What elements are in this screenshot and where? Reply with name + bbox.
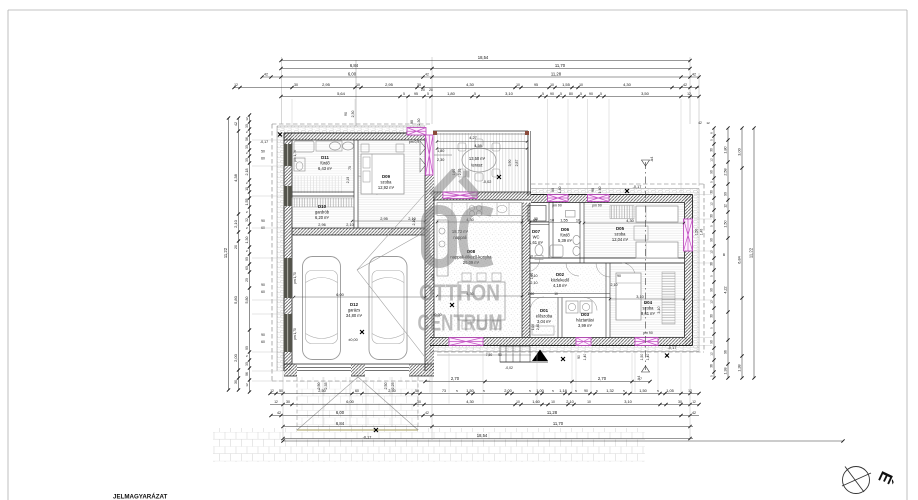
svg-text:3,10: 3,10 bbox=[505, 91, 514, 96]
svg-text:garázs: garázs bbox=[348, 308, 360, 313]
svg-text:1,50: 1,50 bbox=[639, 388, 647, 393]
svg-text:12,92 m²: 12,92 m² bbox=[378, 185, 395, 190]
svg-text:95: 95 bbox=[533, 217, 537, 222]
svg-text:56: 56 bbox=[245, 137, 249, 141]
svg-text:2,10: 2,10 bbox=[530, 281, 537, 285]
svg-text:1,80: 1,80 bbox=[447, 91, 456, 96]
svg-text:10: 10 bbox=[587, 400, 591, 404]
svg-text:1,05: 1,05 bbox=[531, 324, 535, 330]
svg-text:2,18: 2,18 bbox=[245, 169, 249, 176]
svg-text:30: 30 bbox=[710, 214, 714, 218]
svg-text:2,30: 2,30 bbox=[437, 158, 444, 162]
svg-text:-0,17: -0,17 bbox=[633, 185, 642, 189]
svg-text:6,00: 6,00 bbox=[336, 292, 344, 297]
svg-text:közlekedő: közlekedő bbox=[551, 278, 570, 283]
svg-text:D06: D06 bbox=[561, 227, 570, 232]
svg-text:1,60: 1,60 bbox=[528, 292, 535, 296]
svg-text:5: 5 bbox=[623, 389, 625, 393]
svg-text:12: 12 bbox=[710, 158, 714, 162]
svg-text:42: 42 bbox=[425, 73, 429, 77]
svg-text:3,10: 3,10 bbox=[624, 399, 632, 404]
svg-text:18,54: 18,54 bbox=[477, 433, 488, 438]
svg-text:pm 90: pm 90 bbox=[643, 331, 653, 335]
svg-text:2,58: 2,58 bbox=[724, 168, 728, 175]
svg-text:50: 50 bbox=[261, 150, 265, 154]
svg-text:10: 10 bbox=[516, 83, 520, 87]
svg-text:D07: D07 bbox=[532, 229, 541, 234]
svg-text:90: 90 bbox=[589, 92, 593, 96]
svg-text:1,40: 1,40 bbox=[646, 354, 650, 361]
svg-text:1,40: 1,40 bbox=[700, 229, 704, 236]
svg-text:42: 42 bbox=[264, 73, 268, 77]
svg-text:12: 12 bbox=[710, 352, 714, 356]
svg-text:2,50: 2,50 bbox=[318, 388, 326, 393]
svg-text:2,00: 2,00 bbox=[504, 388, 512, 393]
svg-text:12: 12 bbox=[706, 121, 710, 125]
svg-text:12: 12 bbox=[692, 400, 696, 404]
svg-text:4,30: 4,30 bbox=[466, 399, 474, 404]
svg-text:±0,00: ±0,00 bbox=[348, 338, 357, 342]
svg-text:pm 0,9: pm 0,9 bbox=[409, 140, 419, 144]
svg-text:96: 96 bbox=[724, 350, 728, 354]
svg-text:1,50: 1,50 bbox=[466, 388, 474, 393]
svg-text:2,70: 2,70 bbox=[598, 376, 607, 381]
svg-text:1,80: 1,80 bbox=[437, 149, 444, 153]
svg-text:11,22: 11,22 bbox=[223, 247, 228, 258]
svg-text:90: 90 bbox=[710, 170, 714, 174]
svg-text:12: 12 bbox=[724, 204, 728, 208]
svg-text:2,00: 2,00 bbox=[233, 353, 238, 362]
svg-text:D12: D12 bbox=[350, 302, 359, 307]
svg-text:90: 90 bbox=[245, 346, 249, 350]
svg-text:90: 90 bbox=[344, 112, 348, 116]
svg-text:6,84: 6,84 bbox=[336, 421, 345, 426]
svg-text:90: 90 bbox=[261, 283, 265, 287]
svg-text:2,10: 2,10 bbox=[233, 219, 238, 228]
svg-text:90: 90 bbox=[261, 219, 265, 223]
svg-text:95: 95 bbox=[534, 83, 538, 87]
svg-text:1,55: 1,55 bbox=[562, 82, 571, 87]
svg-text:2,95: 2,95 bbox=[380, 216, 388, 221]
svg-text:13,50 m²: 13,50 m² bbox=[469, 156, 486, 161]
svg-text:32: 32 bbox=[245, 218, 249, 222]
svg-text:30: 30 bbox=[710, 190, 714, 194]
svg-text:5: 5 bbox=[575, 389, 577, 393]
svg-text:1,18: 1,18 bbox=[559, 388, 567, 393]
svg-text:90: 90 bbox=[584, 389, 588, 393]
svg-text:10: 10 bbox=[356, 83, 360, 87]
svg-text:3,50: 3,50 bbox=[641, 91, 650, 96]
svg-text:30: 30 bbox=[245, 145, 249, 149]
svg-text:fürdő: fürdő bbox=[320, 161, 330, 166]
svg-text:75: 75 bbox=[530, 255, 534, 259]
svg-text:18,54: 18,54 bbox=[478, 55, 489, 60]
svg-text:73: 73 bbox=[442, 389, 446, 393]
svg-text:5: 5 bbox=[483, 389, 485, 393]
svg-text:7: 7 bbox=[640, 377, 642, 381]
svg-text:11,22: 11,22 bbox=[749, 247, 754, 258]
svg-text:6,43 m²: 6,43 m² bbox=[318, 166, 333, 171]
svg-text:1,32: 1,32 bbox=[606, 388, 614, 393]
svg-text:30: 30 bbox=[710, 148, 714, 152]
svg-text:1,38: 1,38 bbox=[738, 364, 742, 371]
svg-text:5: 5 bbox=[403, 92, 405, 96]
svg-text:1,10: 1,10 bbox=[530, 273, 534, 280]
svg-text:20: 20 bbox=[245, 278, 249, 282]
svg-text:11,28: 11,28 bbox=[551, 72, 562, 77]
svg-text:10: 10 bbox=[551, 400, 555, 404]
svg-text:12: 12 bbox=[270, 389, 274, 393]
svg-text:4,30: 4,30 bbox=[623, 82, 632, 87]
svg-text:-0,02: -0,02 bbox=[483, 180, 492, 184]
svg-text:30: 30 bbox=[245, 124, 249, 128]
svg-text:D02: D02 bbox=[556, 272, 565, 277]
svg-text:42: 42 bbox=[698, 121, 702, 125]
svg-text:2,87: 2,87 bbox=[515, 160, 519, 167]
svg-text:6,84: 6,84 bbox=[738, 256, 742, 263]
svg-text:6,00: 6,00 bbox=[336, 410, 345, 415]
svg-text:3,04 m²: 3,04 m² bbox=[537, 319, 552, 324]
svg-text:2,95: 2,95 bbox=[385, 82, 394, 87]
svg-text:5: 5 bbox=[529, 389, 531, 393]
svg-text:90: 90 bbox=[245, 257, 249, 261]
svg-text:2,70: 2,70 bbox=[451, 376, 460, 381]
svg-text:CENTRUM: CENTRUM bbox=[418, 310, 503, 336]
svg-text:5: 5 bbox=[580, 92, 582, 96]
svg-text:60: 60 bbox=[355, 389, 359, 393]
svg-text:80: 80 bbox=[569, 92, 573, 96]
svg-text:50: 50 bbox=[279, 389, 283, 393]
svg-text:1,80: 1,80 bbox=[724, 146, 728, 153]
svg-text:96: 96 bbox=[245, 372, 249, 376]
svg-text:5,64: 5,64 bbox=[337, 91, 346, 96]
svg-text:OTTHON: OTTHON bbox=[419, 280, 500, 306]
svg-text:5: 5 bbox=[560, 92, 562, 96]
svg-text:90: 90 bbox=[710, 340, 714, 344]
svg-text:42: 42 bbox=[683, 83, 687, 87]
svg-text:2,95: 2,95 bbox=[322, 82, 331, 87]
svg-text:5: 5 bbox=[456, 389, 458, 393]
svg-text:JELMAGYARÁZAT: JELMAGYARÁZAT bbox=[113, 494, 168, 500]
svg-text:A4: A4 bbox=[650, 157, 654, 162]
svg-text:3,10: 3,10 bbox=[657, 306, 661, 313]
svg-text:12: 12 bbox=[687, 92, 691, 96]
svg-text:szoba: szoba bbox=[643, 306, 655, 311]
svg-text:90: 90 bbox=[724, 192, 728, 196]
svg-text:5: 5 bbox=[600, 92, 602, 96]
svg-text:90: 90 bbox=[577, 355, 581, 359]
svg-text:2,10: 2,10 bbox=[346, 223, 353, 227]
svg-text:75: 75 bbox=[348, 166, 352, 170]
svg-text:10: 10 bbox=[550, 83, 554, 87]
svg-text:12: 12 bbox=[710, 300, 714, 304]
svg-text:42: 42 bbox=[425, 411, 429, 415]
svg-text:30: 30 bbox=[234, 380, 238, 384]
svg-text:4,30: 4,30 bbox=[626, 218, 634, 223]
svg-text:30: 30 bbox=[245, 158, 249, 162]
svg-text:2,30: 2,30 bbox=[458, 169, 462, 176]
svg-text:12: 12 bbox=[274, 400, 278, 404]
svg-text:1,50: 1,50 bbox=[695, 229, 699, 236]
svg-text:12: 12 bbox=[710, 202, 714, 206]
svg-text:50: 50 bbox=[415, 389, 419, 393]
svg-text:28: 28 bbox=[429, 88, 433, 92]
svg-text:30: 30 bbox=[710, 314, 714, 318]
svg-text:D03: D03 bbox=[581, 312, 590, 317]
svg-text:10: 10 bbox=[516, 400, 520, 404]
svg-text:12: 12 bbox=[245, 383, 249, 387]
svg-text:30: 30 bbox=[710, 262, 714, 266]
svg-text:D10: D10 bbox=[318, 204, 327, 209]
svg-text:60: 60 bbox=[261, 290, 265, 294]
svg-text:3,10: 3,10 bbox=[636, 294, 644, 299]
svg-text:5: 5 bbox=[542, 92, 544, 96]
svg-text:3,99 m²: 3,99 m² bbox=[578, 323, 593, 328]
svg-text:6,00: 6,00 bbox=[348, 72, 357, 77]
svg-text:11,28: 11,28 bbox=[547, 410, 558, 415]
svg-text:1,60: 1,60 bbox=[532, 399, 540, 404]
svg-text:2,30: 2,30 bbox=[417, 119, 421, 126]
svg-text:10: 10 bbox=[579, 83, 583, 87]
svg-text:pm 90: pm 90 bbox=[552, 204, 562, 208]
svg-text:11,70: 11,70 bbox=[553, 421, 564, 426]
svg-text:4,27: 4,27 bbox=[469, 135, 477, 140]
svg-text:90: 90 bbox=[550, 92, 554, 96]
svg-text:-0,02: -0,02 bbox=[505, 366, 513, 370]
svg-text:42: 42 bbox=[692, 411, 696, 415]
svg-text:1,40: 1,40 bbox=[583, 354, 587, 361]
svg-text:4,18 m²: 4,18 m² bbox=[553, 283, 568, 288]
svg-text:1,05: 1,05 bbox=[666, 388, 674, 393]
svg-text:-0,17: -0,17 bbox=[260, 140, 268, 144]
svg-text:1,55: 1,55 bbox=[560, 217, 568, 222]
svg-text:D04: D04 bbox=[644, 300, 653, 305]
svg-text:fürdő: fürdő bbox=[560, 233, 570, 238]
svg-text:szoba: szoba bbox=[381, 180, 393, 185]
svg-text:12: 12 bbox=[710, 250, 714, 254]
svg-text:90: 90 bbox=[261, 333, 265, 337]
svg-text:30: 30 bbox=[417, 83, 421, 87]
svg-text:pm 1,70: pm 1,70 bbox=[293, 272, 297, 284]
svg-text:90: 90 bbox=[591, 188, 595, 192]
svg-text:10: 10 bbox=[554, 292, 558, 296]
svg-text:1,30: 1,30 bbox=[245, 237, 249, 244]
svg-text:42: 42 bbox=[692, 73, 696, 77]
svg-text:2,10: 2,10 bbox=[566, 399, 574, 404]
svg-text:1,61 m²: 1,61 m² bbox=[529, 240, 544, 245]
svg-text:60: 60 bbox=[261, 340, 265, 344]
svg-text:5: 5 bbox=[552, 389, 554, 393]
svg-text:szoba: szoba bbox=[615, 232, 627, 237]
svg-text:12: 12 bbox=[245, 117, 249, 121]
svg-text:60: 60 bbox=[261, 157, 265, 161]
svg-text:30: 30 bbox=[294, 83, 298, 87]
svg-text:-0,17: -0,17 bbox=[363, 436, 372, 440]
svg-text:1,38: 1,38 bbox=[724, 368, 728, 375]
svg-text:5: 5 bbox=[657, 389, 659, 393]
svg-text:pm 90: pm 90 bbox=[592, 204, 602, 208]
svg-text:5,39 m²: 5,39 m² bbox=[558, 238, 573, 243]
svg-text:2,96: 2,96 bbox=[318, 223, 325, 227]
svg-text:3,90: 3,90 bbox=[508, 160, 512, 167]
svg-text:12,04 m²: 12,04 m² bbox=[612, 237, 629, 242]
svg-text:95: 95 bbox=[414, 92, 418, 96]
svg-text:5: 5 bbox=[596, 389, 598, 393]
svg-text:30: 30 bbox=[417, 400, 421, 404]
svg-text:90: 90 bbox=[410, 120, 414, 124]
svg-text:1,40: 1,40 bbox=[558, 187, 562, 194]
svg-text:90: 90 bbox=[551, 188, 555, 192]
svg-text:12: 12 bbox=[234, 83, 238, 87]
svg-text:42: 42 bbox=[277, 411, 281, 415]
svg-text:2,30: 2,30 bbox=[351, 111, 355, 118]
svg-text:pm 1,70: pm 1,70 bbox=[293, 328, 297, 340]
svg-text:1,00: 1,00 bbox=[536, 388, 544, 393]
svg-text:34,80 m²: 34,80 m² bbox=[346, 313, 363, 318]
svg-text:60: 60 bbox=[245, 266, 249, 270]
svg-text:előszoba: előszoba bbox=[536, 314, 553, 319]
svg-text:D01: D01 bbox=[540, 308, 549, 313]
svg-text:4,59: 4,59 bbox=[474, 143, 482, 148]
svg-text:6,00: 6,00 bbox=[346, 399, 354, 404]
svg-text:5,80: 5,80 bbox=[233, 295, 238, 304]
svg-text:42: 42 bbox=[234, 122, 238, 126]
svg-text:30: 30 bbox=[678, 400, 682, 404]
svg-text:20: 20 bbox=[234, 245, 238, 249]
svg-text:4,38: 4,38 bbox=[233, 173, 238, 182]
svg-text:5,80: 5,80 bbox=[245, 297, 249, 304]
svg-text:10: 10 bbox=[245, 187, 249, 191]
svg-text:9,61 m²: 9,61 m² bbox=[641, 311, 656, 316]
svg-text:30: 30 bbox=[245, 362, 249, 366]
svg-text:30: 30 bbox=[286, 400, 290, 404]
svg-text:36: 36 bbox=[710, 364, 714, 368]
svg-text:5: 5 bbox=[474, 92, 476, 96]
svg-text:D11: D11 bbox=[321, 155, 329, 160]
svg-text:11,70: 11,70 bbox=[555, 63, 566, 68]
svg-text:1,50: 1,50 bbox=[724, 220, 728, 227]
svg-text:4,30: 4,30 bbox=[466, 82, 475, 87]
svg-text:6,84: 6,84 bbox=[350, 63, 359, 68]
svg-text:2,10: 2,10 bbox=[412, 219, 416, 226]
svg-text:4,22: 4,22 bbox=[724, 286, 728, 293]
svg-text:90: 90 bbox=[617, 274, 621, 278]
svg-text:D09: D09 bbox=[382, 174, 391, 179]
svg-text:90: 90 bbox=[710, 238, 714, 242]
svg-text:D05: D05 bbox=[616, 226, 625, 231]
svg-text:5: 5 bbox=[427, 92, 429, 96]
svg-text:3,00: 3,00 bbox=[738, 148, 742, 155]
svg-text:2,19: 2,19 bbox=[346, 177, 350, 184]
svg-text:90: 90 bbox=[710, 288, 714, 292]
svg-text:WC: WC bbox=[533, 235, 540, 240]
svg-text:1,50: 1,50 bbox=[640, 354, 644, 361]
svg-text:2,10: 2,10 bbox=[611, 283, 618, 287]
svg-text:-0,17: -0,17 bbox=[668, 346, 677, 350]
svg-text:1,55: 1,55 bbox=[245, 199, 249, 206]
svg-text:6,20 m²: 6,20 m² bbox=[315, 215, 330, 220]
svg-text:háztartási: háztartási bbox=[576, 318, 594, 323]
svg-text:1,40: 1,40 bbox=[598, 187, 602, 194]
svg-text:terasz: terasz bbox=[471, 163, 482, 168]
svg-text:2,50: 2,50 bbox=[388, 388, 396, 393]
svg-text:2,40: 2,40 bbox=[536, 324, 540, 330]
svg-text:gardrób: gardrób bbox=[315, 210, 330, 215]
